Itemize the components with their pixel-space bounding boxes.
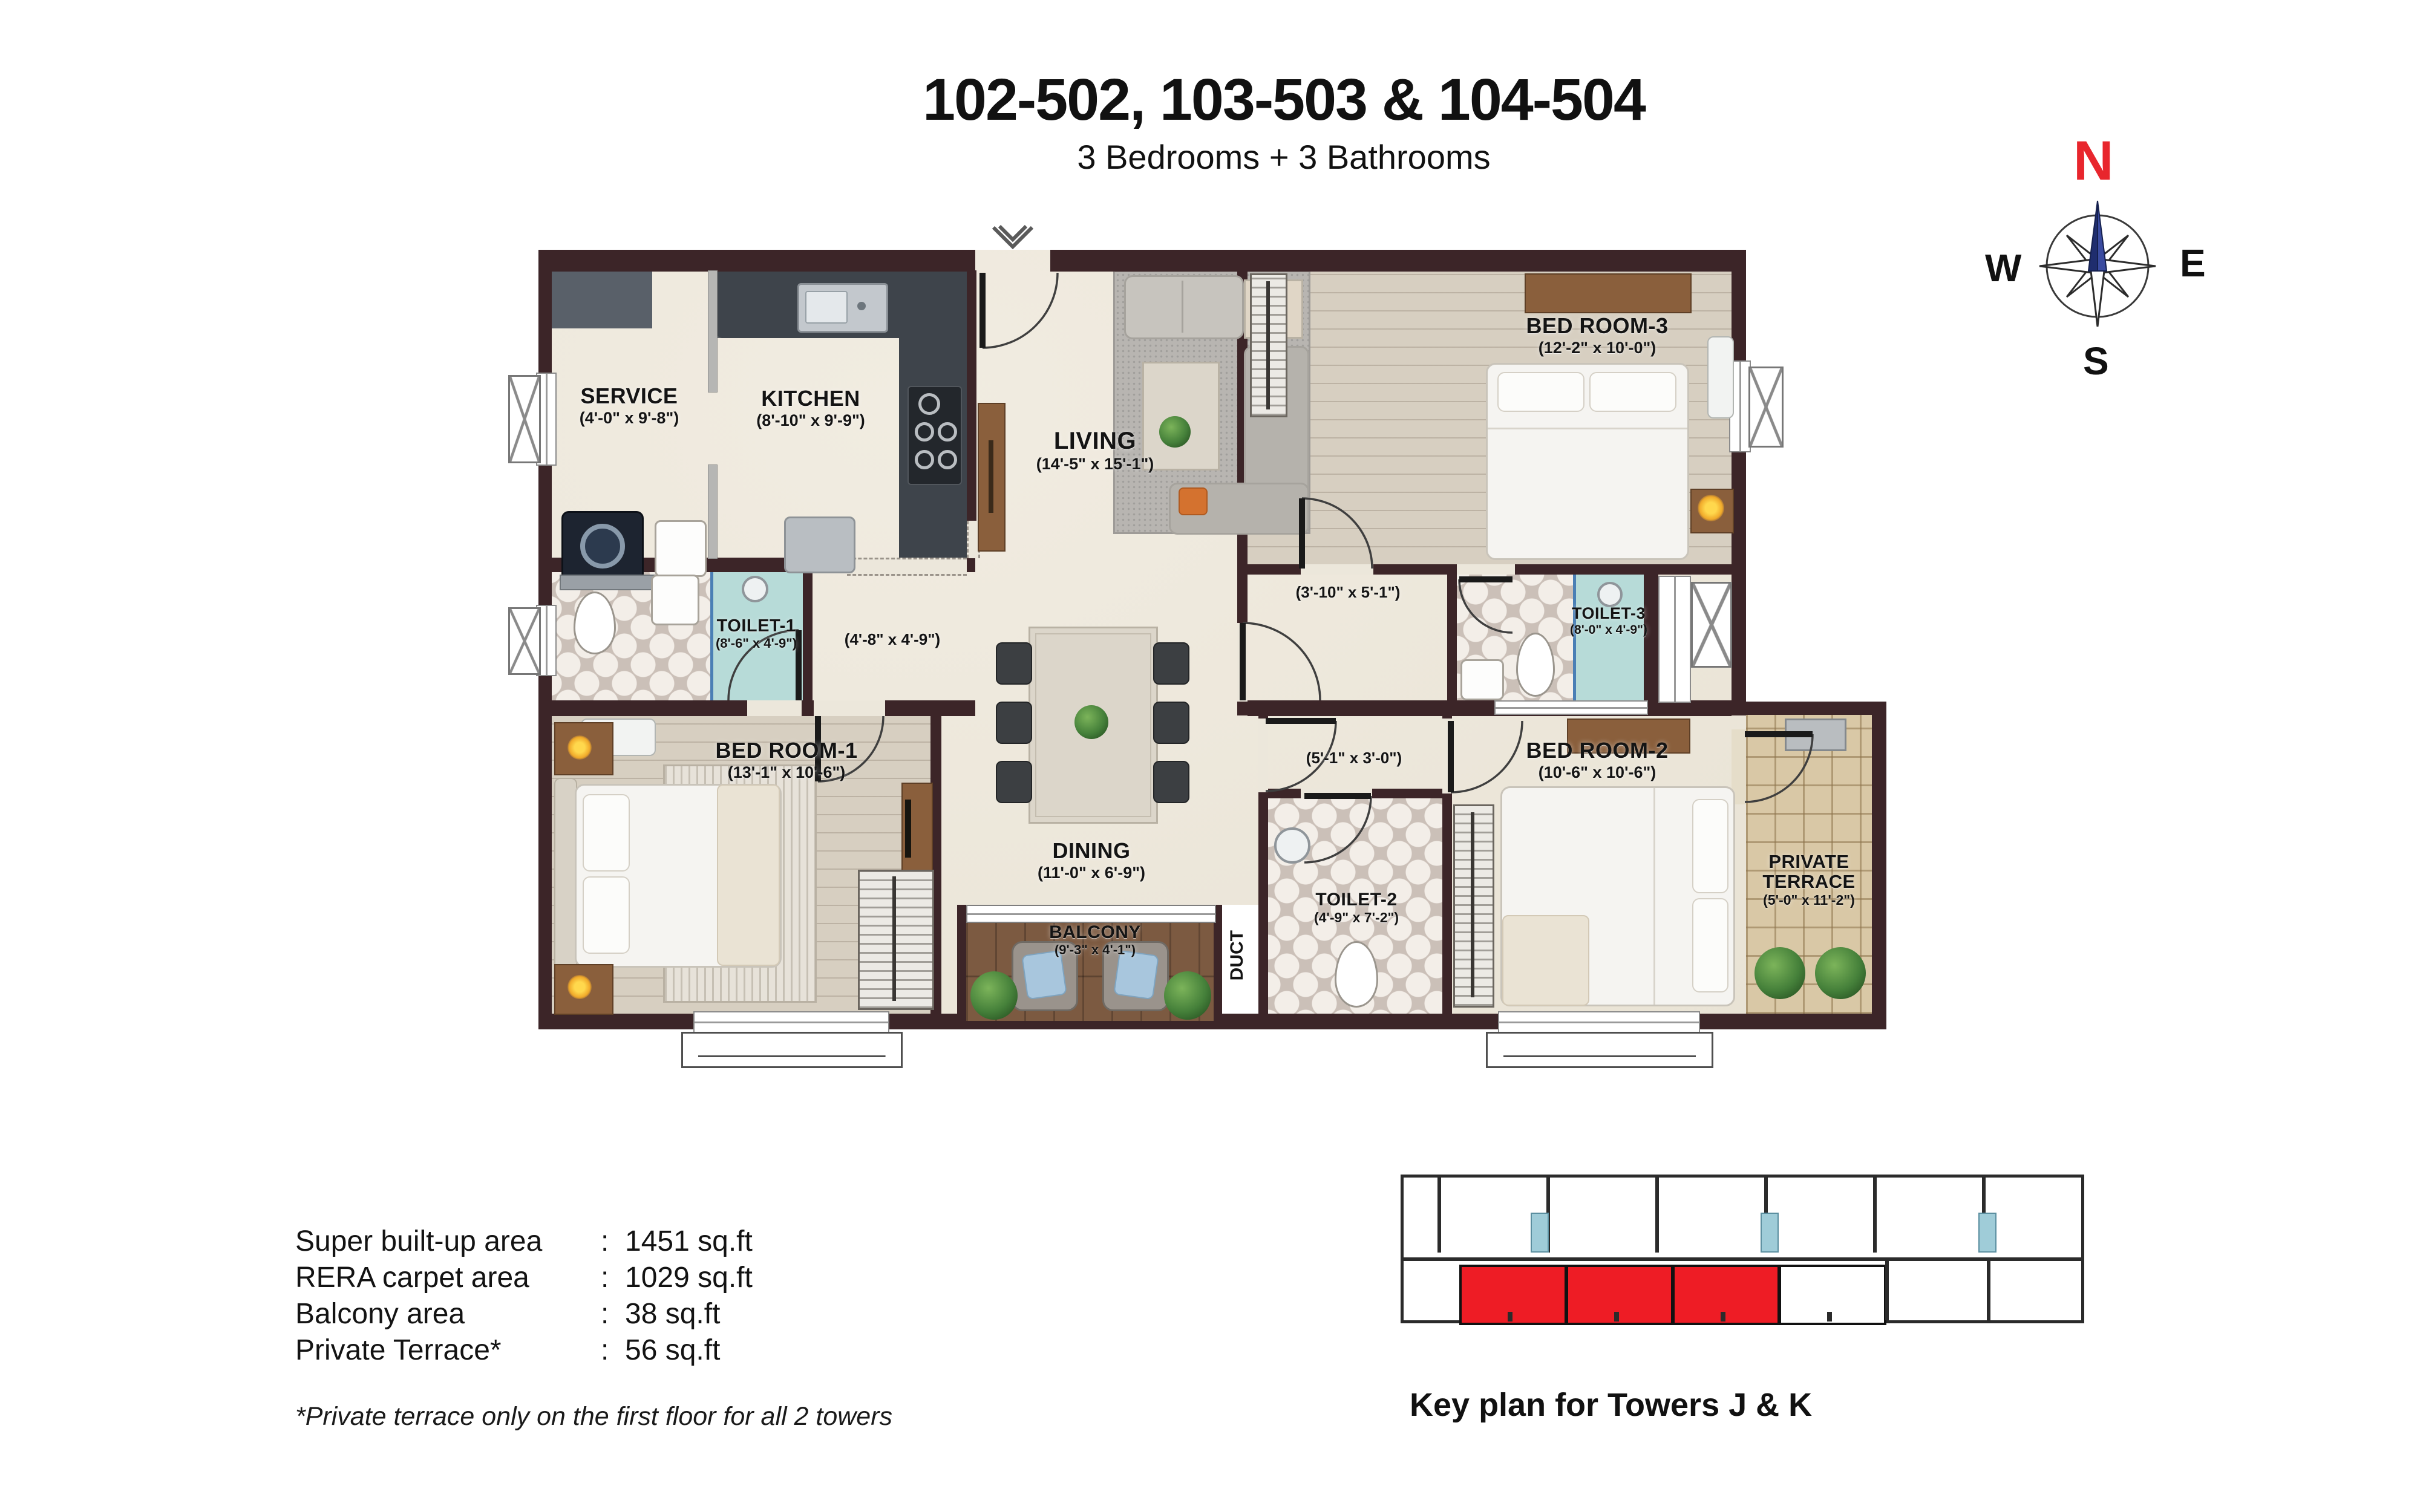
dining-chair [996,761,1032,803]
room-label-toilet1: TOILET-1 (8'-6" x 4'-9") [716,617,797,652]
wall-segment [1732,250,1746,715]
room-label-bedroom3: BED ROOM-3 (12'-2" x 10'-0") [1526,314,1668,357]
partition-segment [708,464,718,559]
window [693,1011,889,1033]
room-dim: (8'-0" x 4'-9") [1570,622,1647,637]
wardrobe [1250,273,1287,417]
area-label: Private Terrace* [295,1334,601,1367]
room-dim: (8'-10" x 9'-9") [756,411,865,430]
cabinet [978,403,1006,552]
open-kitchen-edge [847,558,967,576]
door-opening [1301,789,1372,798]
room-dim: (5'-1" x 3'-0") [1306,749,1402,767]
area-label: RERA carpet area [295,1261,601,1294]
room-dim: (5'-0" x 11'-2") [1745,892,1872,909]
room-name: LIVING [1036,428,1154,454]
room-name: TOILET-1 [716,617,797,636]
wardrobe [858,870,934,1010]
highlighted-unit [1672,1265,1780,1325]
room-name: SERVICE [580,385,679,408]
room-name: BED ROOM-1 [715,739,857,763]
room-dim: (8'-6" x 4'-9") [716,636,797,651]
plant [1815,947,1866,999]
room-name: PRIVATE TERRACE [1745,852,1872,892]
area-separator: : [601,1297,625,1331]
room-label-service: SERVICE (4'-0" x 9'-8") [580,385,679,428]
area-row: Super built-up area : 1451 sq.ft [295,1223,753,1259]
shower-head [742,576,768,602]
door-opening [1442,719,1452,793]
key-plan-caption: Key plan for Towers J & K [1410,1386,1812,1424]
balcony-railing [966,1021,1214,1029]
room-dim: (4'-9" x 7'-2") [1314,910,1399,927]
shower-head [1597,582,1623,607]
refrigerator [784,516,855,573]
room-dim: (14'-5" x 15'-1") [1036,454,1154,474]
wall-segment [538,250,975,272]
entry-chevron-icon [993,226,1032,247]
headboard [554,778,577,971]
vestibule-dim-label: (3'-10" x 5'-1") [1296,583,1401,602]
room-label-living: LIVING (14'-5" x 15'-1") [1036,428,1154,474]
room-name: TOILET-3 [1570,605,1647,622]
compass-star-icon [2019,187,2176,345]
highlighted-unit [1459,1265,1567,1325]
wall-segment [1746,702,1886,715]
area-row: Balcony area : 38 sq.ft [295,1295,753,1332]
room-label-balcony: BALCONY (9'-3" x 4'-1") [1049,923,1141,959]
door-opening [1457,564,1515,575]
room-label-kitchen: KITCHEN (8'-10" x 9'-9") [756,387,865,430]
compass-north-label: N [2073,129,2113,193]
stair-core [1531,1213,1549,1253]
window-ledge [1494,700,1648,715]
page-header: 102-502, 103-503 & 104-504 3 Bedrooms + … [860,70,1707,177]
window-projection-icon [1748,367,1784,448]
room-name: BALCONY [1049,923,1141,942]
balcony-sliding-door [966,905,1216,923]
outdoor-ac-unit [1785,719,1846,751]
vanity-basin [651,575,699,625]
room-dim: (12'-2" x 10'-0") [1526,338,1668,357]
wall-segment [1872,702,1886,1029]
area-value: 56 sq.ft [625,1334,720,1367]
passage-dim-label: (4'-8" x 4'-9") [845,630,940,649]
room-label-toilet3: TOILET-3 (8'-0" x 4'-9") [1570,605,1647,637]
door-opening [1301,564,1373,575]
area-value: 1029 sq.ft [625,1261,753,1294]
washing-machine [561,511,644,581]
dining-chair [1153,702,1189,744]
room-dim: (4'-8" x 4'-9") [845,630,940,649]
area-row: RERA carpet area : 1029 sq.ft [295,1259,753,1295]
plant [1164,971,1211,1020]
plant [1159,416,1191,448]
room-label-bedroom2: BED ROOM-2 (10'-6" x 10'-6") [1526,739,1668,782]
room-dim: (4'-0" x 9'-8") [580,408,679,428]
plant [1074,705,1108,739]
compass-rose: N W E S [1987,138,2217,386]
lamp-glow [567,975,592,999]
round-basin [1274,827,1310,864]
wall-segment [957,905,966,1029]
bed [1486,363,1689,560]
lamp-glow [567,735,592,760]
room-dim: (13'-1" x 10'-6") [715,763,857,782]
wall-segment [967,270,976,521]
headboard-console [1525,273,1692,313]
dining-chair [996,702,1032,744]
wall-segment [1746,1014,1886,1029]
compass-east-label: E [2180,241,2206,285]
dining-chair [996,642,1032,685]
door-opening [747,700,802,716]
compass-west-label: W [1985,246,2021,290]
window [1658,576,1691,703]
kitchen-sink [797,283,888,333]
room-name: TOILET-2 [1314,890,1399,910]
highlighted-unit [1566,1265,1673,1325]
plant [970,971,1018,1020]
unit-outline [1779,1265,1886,1325]
dining-chair [1153,761,1189,803]
ac-unit [1707,336,1734,419]
door-opening [1258,719,1268,792]
wall-segment [1050,250,1746,272]
wall-segment [803,571,813,702]
key-plan [1401,1175,2084,1323]
room-label-terrace: PRIVATE TERRACE (5'-0" x 11'-2") [1745,852,1872,909]
window [1498,1011,1700,1033]
area-separator: : [601,1334,625,1367]
plant [1754,947,1805,999]
terrace-footnote: *Private terrace only on the first floor… [295,1402,892,1432]
window-projection-icon [1691,582,1732,668]
window-projection-icon [508,375,541,463]
window-sill [681,1032,903,1068]
service-sink [655,520,707,577]
area-row: Private Terrace* : 56 sq.ft [295,1332,753,1368]
area-label: Balcony area [295,1297,601,1331]
page-subtitle: 3 Bedrooms + 3 Bathrooms [860,137,1707,177]
room-name: BED ROOM-3 [1526,314,1668,338]
stair-core [1761,1213,1779,1253]
room-name: DINING [1038,839,1145,863]
wardrobe [1453,804,1494,1008]
lobby-dim-label: (5'-1" x 3'-0") [1306,749,1402,767]
room-label-dining: DINING (11'-0" x 6'-9") [1038,839,1145,882]
area-label: Super built-up area [295,1225,601,1258]
room-dim: (3'-10" x 5'-1") [1296,583,1401,602]
room-label-toilet2: TOILET-2 (4'-9" x 7'-2") [1314,890,1399,927]
loveseat-sofa [1124,275,1244,339]
duct-label: DUCT [1227,930,1248,980]
area-separator: : [601,1225,625,1258]
compass-south-label: S [2083,339,2109,383]
stair-core [1978,1213,1996,1253]
lamp-glow [1698,495,1724,521]
tv-unit [901,783,933,877]
page-title: 102-502, 103-503 & 104-504 [860,70,1707,129]
room-name: BED ROOM-2 [1526,739,1668,763]
window-projection-icon [508,607,541,675]
room-name: KITCHEN [756,387,865,411]
door-opening [1237,623,1248,702]
dining-chair [1153,642,1189,685]
partition-segment [708,270,718,393]
room-dim: (9'-3" x 4'-1") [1049,942,1141,958]
room-dim: (11'-0" x 6'-9") [1038,863,1145,882]
area-table: Super built-up area : 1451 sq.ft RERA ca… [295,1223,753,1368]
room-label-bedroom1: BED ROOM-1 (13'-1" x 10'-6") [715,739,857,782]
gas-hob [907,386,962,485]
wall-segment [1447,575,1457,702]
wall-segment [1260,905,1268,1023]
door-opening [814,700,885,716]
vanity-basin [1460,659,1504,700]
window-sill [1486,1032,1713,1068]
area-value: 38 sq.ft [625,1297,720,1331]
room-dim: (10'-6" x 10'-6") [1526,763,1668,782]
service-counter [549,270,652,328]
area-value: 1451 sq.ft [625,1225,753,1258]
bed [575,784,782,968]
accent-pillow [1179,487,1208,515]
bed [1500,786,1735,1006]
area-separator: : [601,1261,625,1294]
